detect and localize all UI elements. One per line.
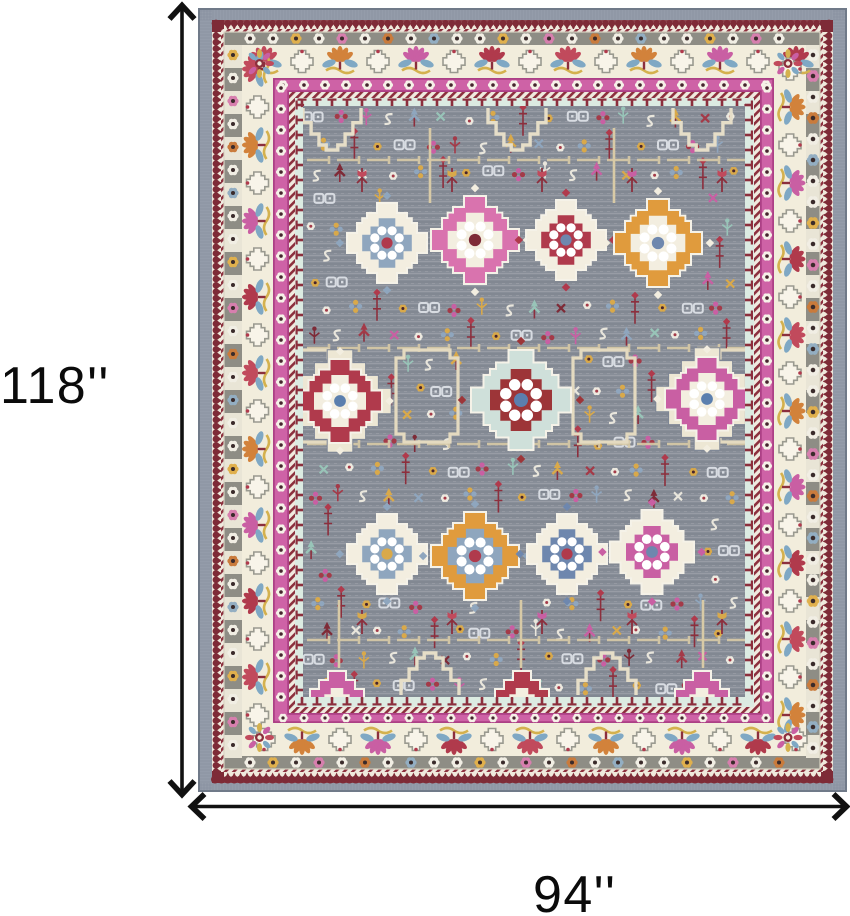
svg-text:118'': 118'' bbox=[0, 357, 110, 415]
svg-text:94'': 94'' bbox=[533, 866, 616, 916]
